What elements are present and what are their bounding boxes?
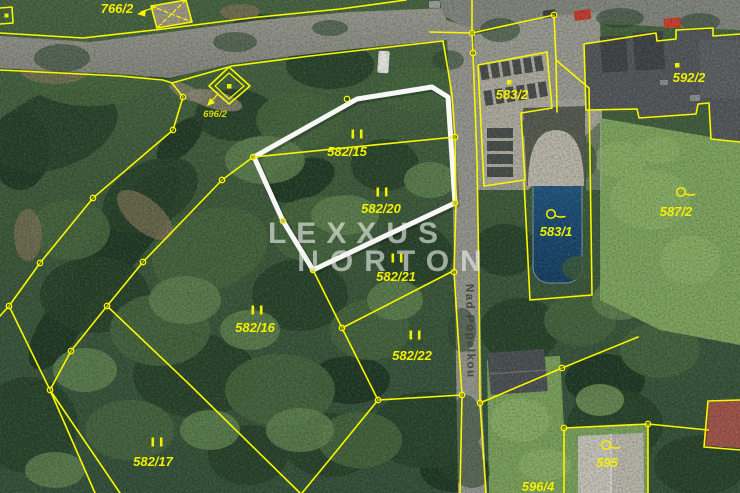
parcel-label-582-15: 582/15 [327,144,368,159]
parcel-label-582-16: 582/16 [235,320,276,335]
street-label: Nad Popelkou [463,284,477,379]
parcel-label-582-17: 582/17 [133,454,174,469]
building-dot-592-2 [675,63,680,68]
parcel-label-583-2: 583/2 [496,87,529,102]
building-dot-corner [5,14,9,18]
parcel-label-766-2: 766/2 [101,1,134,16]
parcel-label-582-22: 582/22 [392,348,433,363]
watermark-line2: NORTON [297,245,492,278]
parcel-label-595: 595 [596,455,618,470]
parcel-label-587-2: 587/2 [660,204,693,219]
parcel-label-583-1: 583/1 [540,224,573,239]
cadastral-map: Nad Popelkou [0,0,740,493]
parcel-label-592-2: 592/2 [673,70,706,85]
parcel-label-582-20: 582/20 [361,201,402,216]
map-canvas: Nad Popelkou [0,0,740,493]
building-dot-583-2 [507,80,512,85]
parcel-label-696-2: 696/2 [203,109,227,120]
building-dot-diamond [227,84,232,89]
parcel-label-596-4: 596/4 [522,479,555,493]
